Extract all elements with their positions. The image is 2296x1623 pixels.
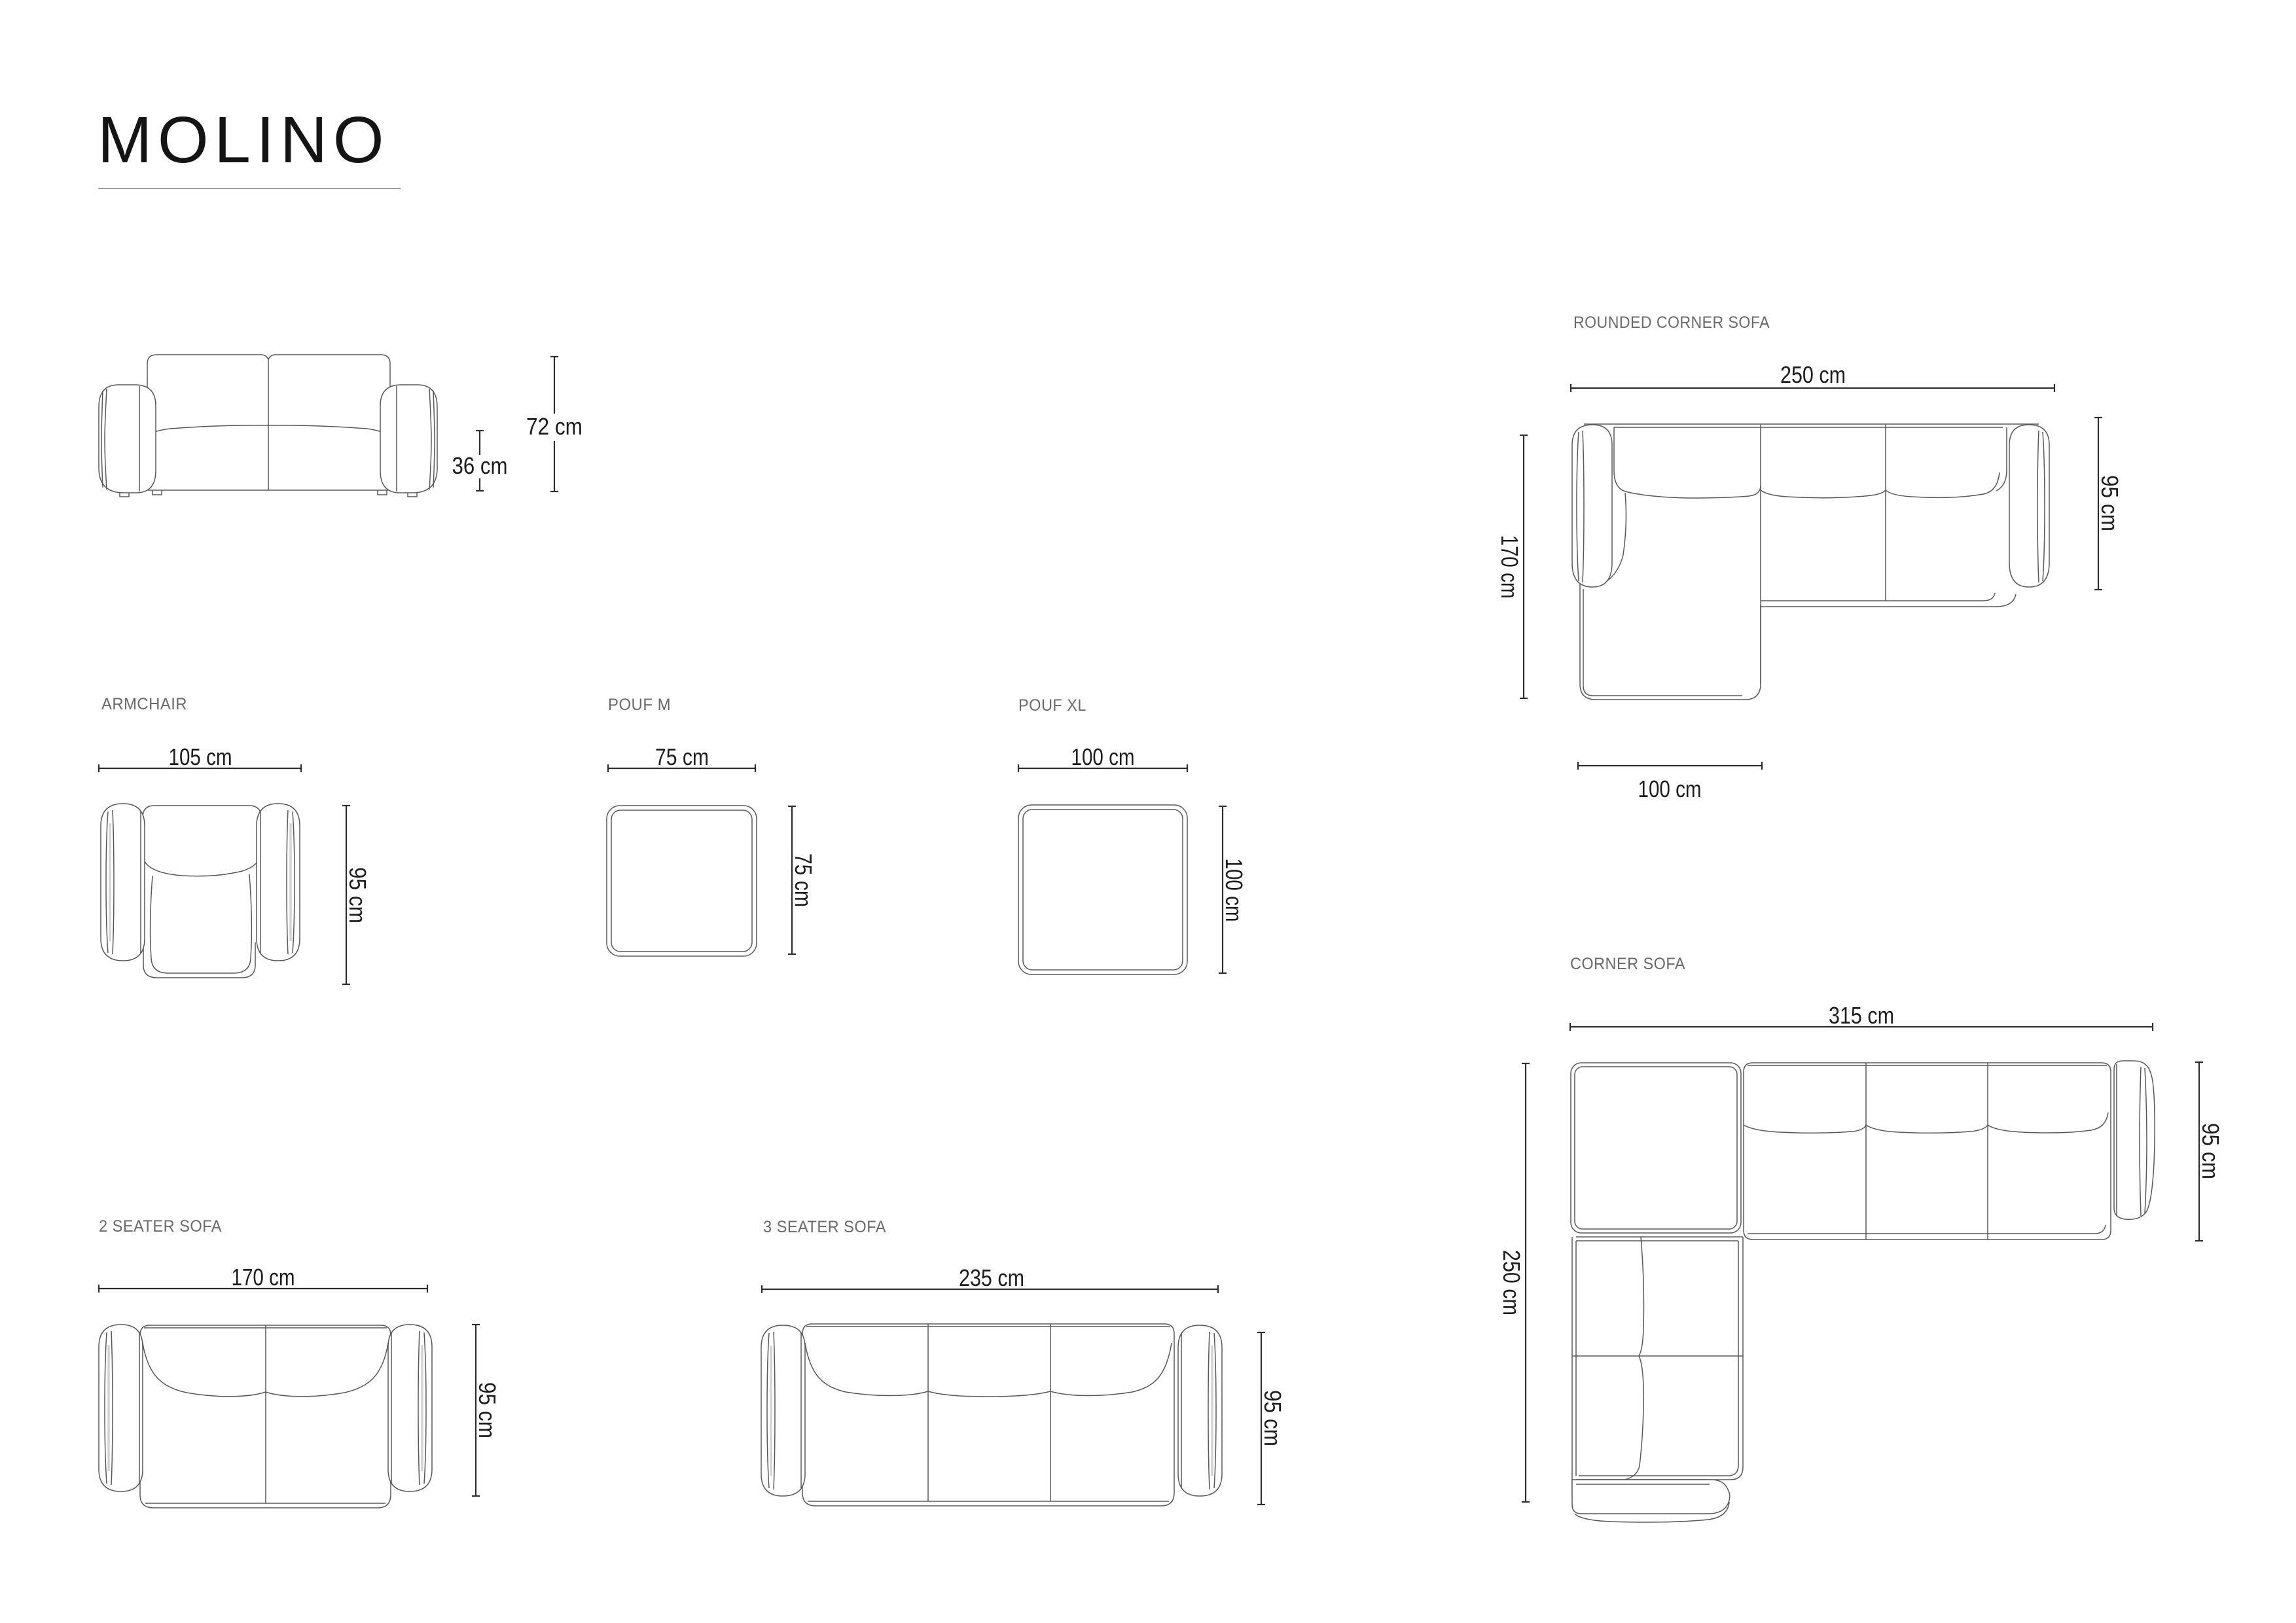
svg-text:POUF XL: POUF XL [1018, 696, 1086, 715]
svg-text:170 cm: 170 cm [1496, 535, 1523, 599]
svg-text:95 cm: 95 cm [2197, 1123, 2224, 1179]
svg-text:95 cm: 95 cm [2096, 475, 2123, 531]
svg-text:36 cm: 36 cm [452, 452, 508, 479]
svg-text:250 cm: 250 cm [1498, 1250, 1525, 1315]
svg-text:75 cm: 75 cm [790, 853, 817, 907]
svg-text:2 SEATER SOFA: 2 SEATER SOFA [99, 1217, 222, 1236]
svg-text:100 cm: 100 cm [1638, 776, 1702, 802]
svg-text:315 cm: 315 cm [1829, 1002, 1894, 1029]
svg-text:100 cm: 100 cm [1221, 859, 1247, 922]
svg-text:95 cm: 95 cm [1259, 1390, 1286, 1446]
svg-text:105 cm: 105 cm [169, 743, 232, 770]
svg-text:ROUNDED CORNER SOFA: ROUNDED CORNER SOFA [1573, 313, 1770, 332]
svg-text:POUF M: POUF M [608, 696, 671, 714]
svg-text:235 cm: 235 cm [959, 1264, 1024, 1291]
svg-text:250 cm: 250 cm [1780, 361, 1846, 388]
svg-text:MOLINO: MOLINO [98, 103, 389, 177]
svg-text:95 cm: 95 cm [344, 867, 371, 923]
svg-text:75 cm: 75 cm [655, 743, 709, 770]
svg-text:72 cm: 72 cm [526, 413, 583, 440]
svg-text:100 cm: 100 cm [1071, 743, 1135, 770]
svg-text:ARMCHAIR: ARMCHAIR [101, 695, 187, 713]
svg-text:170 cm: 170 cm [232, 1264, 295, 1291]
svg-text:CORNER SOFA: CORNER SOFA [1570, 955, 1685, 973]
svg-text:95 cm: 95 cm [474, 1382, 501, 1438]
svg-text:3 SEATER SOFA: 3 SEATER SOFA [763, 1218, 886, 1236]
